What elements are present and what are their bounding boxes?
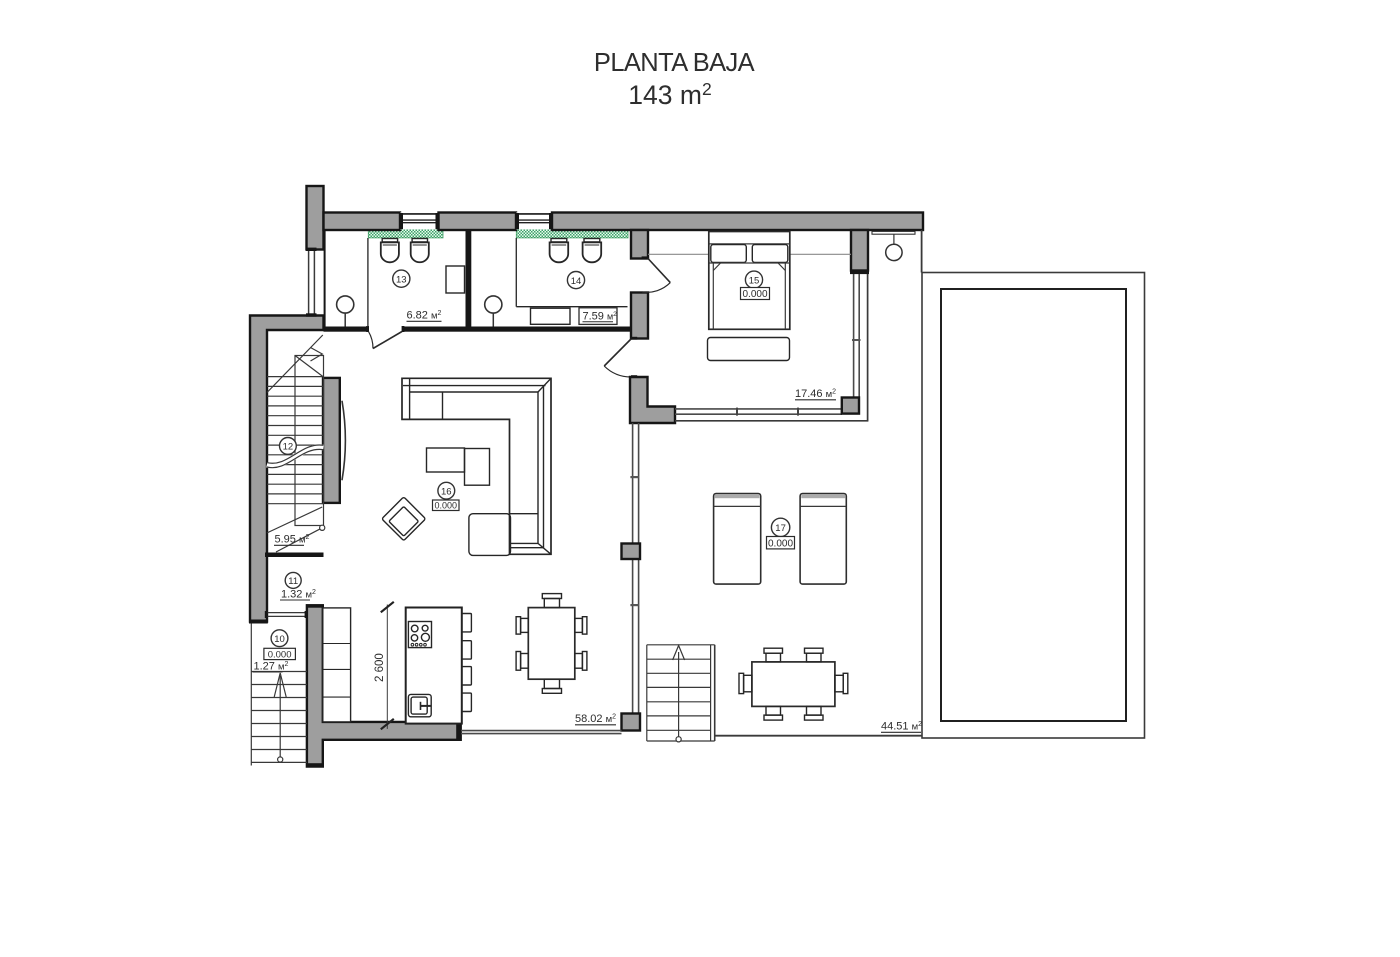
svg-text:12: 12: [283, 442, 294, 453]
svg-text:58.02 м2: 58.02 м2: [575, 713, 616, 725]
svg-text:14: 14: [571, 276, 582, 287]
svg-text:143 m2: 143 m2: [628, 79, 711, 110]
svg-text:0.000: 0.000: [742, 289, 767, 300]
svg-text:5.95 м2: 5.95 м2: [275, 534, 310, 546]
svg-text:0.000: 0.000: [768, 538, 793, 549]
svg-text:10: 10: [274, 634, 285, 645]
svg-text:16: 16: [441, 486, 452, 497]
svg-text:0.000: 0.000: [268, 649, 292, 660]
svg-text:11: 11: [288, 576, 298, 587]
svg-text:17.46 м2: 17.46 м2: [795, 388, 836, 400]
svg-text:1.27 м2: 1.27 м2: [254, 661, 289, 673]
svg-text:44.51 м2: 44.51 м2: [881, 721, 922, 733]
svg-text:2 600: 2 600: [374, 653, 386, 682]
svg-text:1.32 м2: 1.32 м2: [281, 589, 316, 601]
svg-text:6.82 м2: 6.82 м2: [407, 310, 442, 322]
svg-text:0.000: 0.000: [435, 501, 458, 511]
svg-text:7.59 м2: 7.59 м2: [583, 311, 618, 323]
svg-text:17: 17: [775, 523, 786, 534]
svg-text:13: 13: [396, 274, 407, 285]
svg-text:PLANTA BAJA: PLANTA BAJA: [594, 49, 755, 77]
svg-text:15: 15: [749, 275, 760, 286]
